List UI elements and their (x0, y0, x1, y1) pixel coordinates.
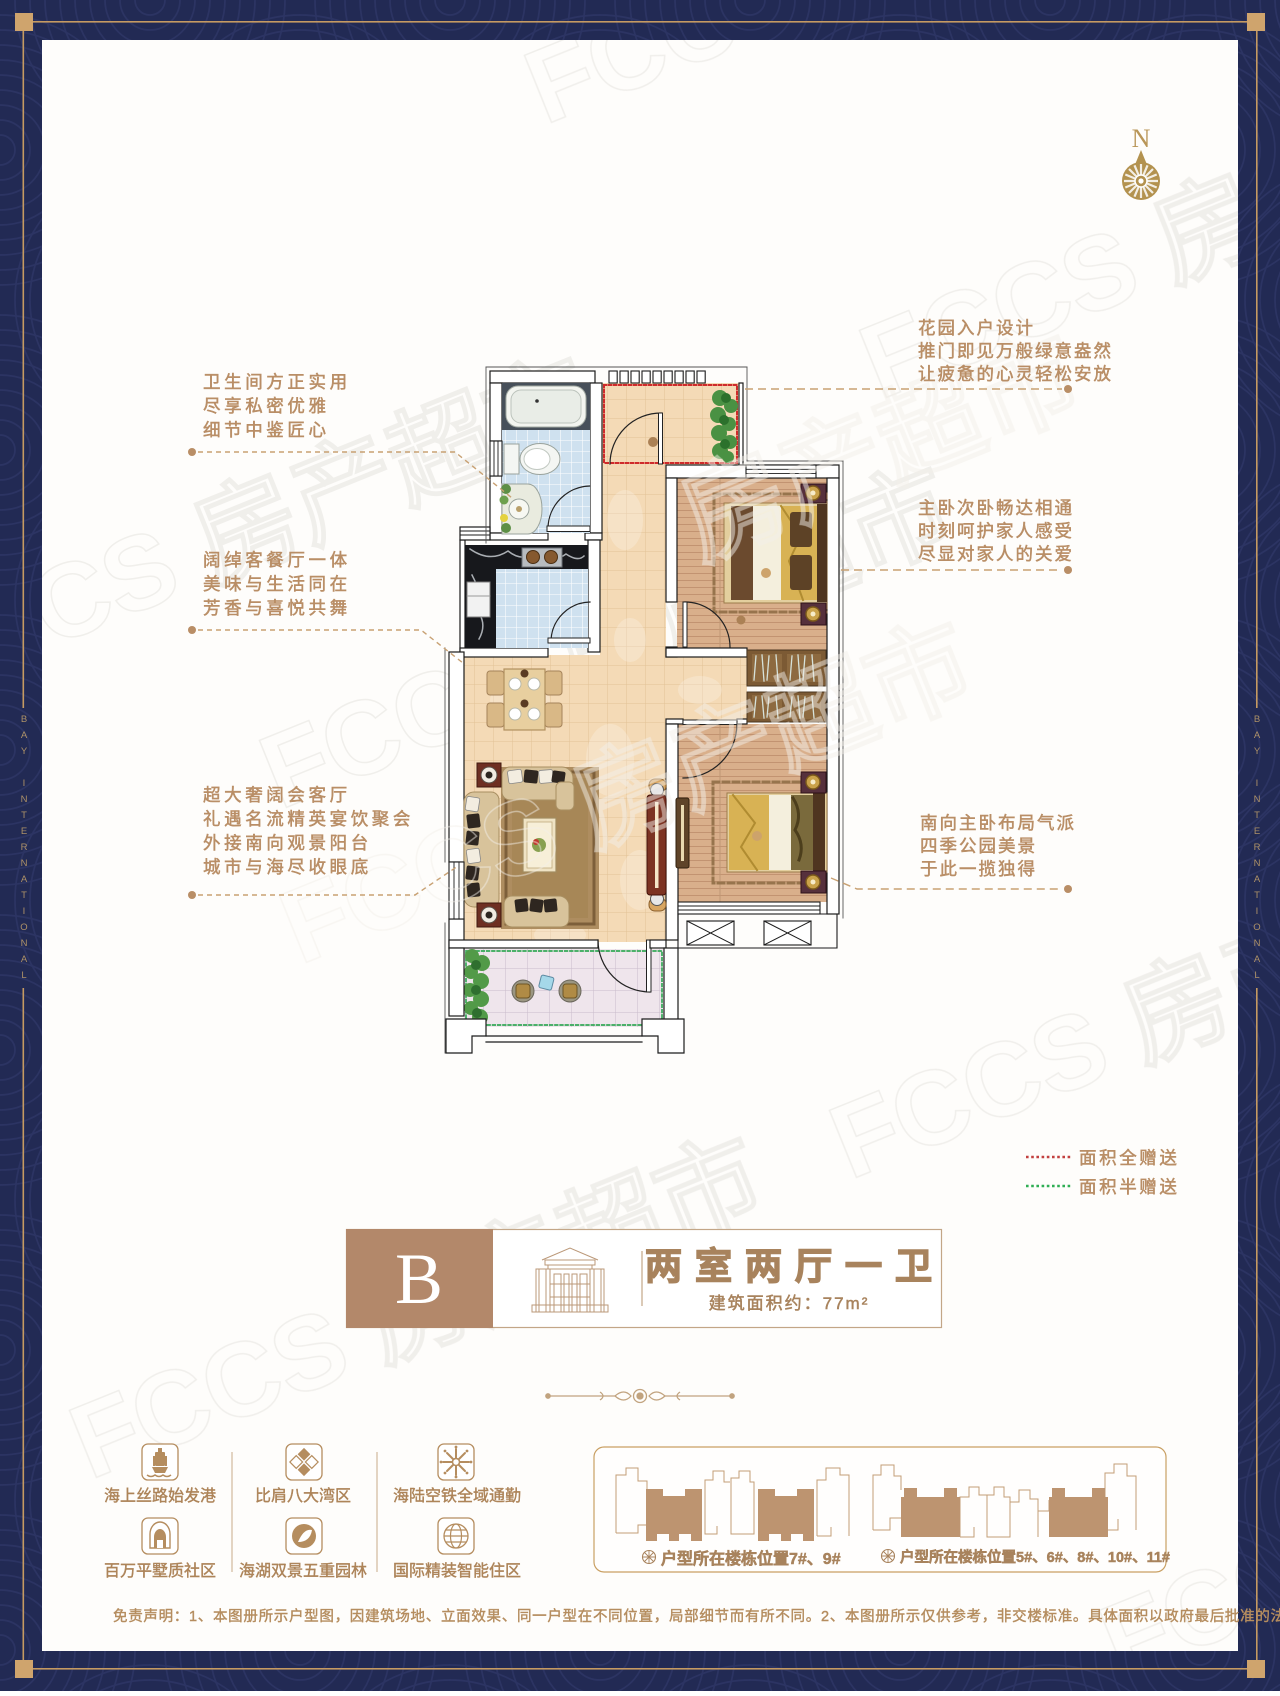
svg-text:南向主卧布局气派: 南向主卧布局气派 (920, 813, 1076, 833)
svg-text:I: I (23, 778, 26, 789)
svg-text:A: A (21, 730, 28, 741)
svg-text:E: E (1254, 826, 1260, 837)
svg-text:比肩八大湾区: 比肩八大湾区 (255, 1487, 351, 1505)
svg-text:A: A (1254, 954, 1261, 965)
svg-text:芳香与喜悦共舞: 芳香与喜悦共舞 (203, 598, 351, 618)
svg-text:R: R (21, 842, 28, 853)
svg-text:尽享私密优雅: 尽享私密优雅 (203, 396, 330, 416)
svg-text:B: B (1254, 714, 1260, 725)
svg-text:海陆空铁全域通勤: 海陆空铁全域通勤 (393, 1487, 521, 1505)
svg-text:户型所在楼栋位置7#、9#: 户型所在楼栋位置7#、9# (661, 1549, 841, 1568)
svg-text:尽显对家人的关爱: 尽显对家人的关爱 (918, 544, 1074, 564)
svg-text:四季公园美景: 四季公园美景 (920, 836, 1037, 856)
svg-text:N: N (1254, 858, 1261, 869)
svg-text:阔绰客餐厅一体: 阔绰客餐厅一体 (203, 550, 351, 570)
svg-text:推门即见万般绿意盎然: 推门即见万般绿意盎然 (918, 341, 1113, 361)
svg-text:Y: Y (21, 746, 28, 757)
svg-text:N: N (21, 794, 28, 805)
svg-text:I: I (1256, 778, 1259, 789)
svg-text:面积全赠送: 面积全赠送 (1079, 1148, 1180, 1168)
svg-text:E: E (21, 826, 27, 837)
svg-text:城市与海尽收眼底: 城市与海尽收眼底 (203, 857, 372, 877)
svg-text:细节中鉴匠心: 细节中鉴匠心 (203, 420, 330, 440)
svg-text:建筑面积约：77m²: 建筑面积约：77m² (709, 1294, 870, 1313)
svg-text:T: T (1254, 810, 1260, 821)
svg-text:花园入户设计: 花园入户设计 (918, 318, 1035, 338)
svg-text:T: T (1254, 890, 1260, 901)
svg-text:面积半赠送: 面积半赠送 (1079, 1177, 1180, 1197)
svg-text:T: T (21, 810, 27, 821)
svg-text:B: B (21, 714, 27, 725)
svg-text:I: I (23, 906, 26, 917)
svg-text:L: L (21, 970, 26, 981)
svg-text:O: O (1253, 922, 1260, 933)
svg-text:O: O (20, 922, 27, 933)
svg-text:R: R (1254, 842, 1261, 853)
svg-text:百万平墅质社区: 百万平墅质社区 (104, 1562, 216, 1580)
svg-text:美味与生活同在: 美味与生活同在 (203, 574, 351, 594)
svg-text:N: N (21, 858, 28, 869)
svg-text:让疲惫的心灵轻松安放: 让疲惫的心灵轻松安放 (918, 364, 1113, 384)
svg-text:N: N (1132, 124, 1151, 153)
svg-text:N: N (1254, 794, 1261, 805)
svg-text:超大奢阔会客厅: 超大奢阔会客厅 (203, 785, 351, 805)
svg-text:A: A (1254, 730, 1261, 741)
svg-text:海上丝路始发港: 海上丝路始发港 (104, 1487, 216, 1505)
svg-text:Y: Y (1254, 746, 1261, 757)
svg-text:海湖双景五重园林: 海湖双景五重园林 (239, 1562, 367, 1580)
svg-text:A: A (21, 954, 28, 965)
svg-text:A: A (1254, 874, 1261, 885)
svg-text:于此一揽独得: 于此一揽独得 (920, 859, 1037, 879)
svg-text:免责声明：1、本图册所示户型图，因建筑场地、立面效果、同一户: 免责声明：1、本图册所示户型图，因建筑场地、立面效果、同一户型在不同位置，局部细… (113, 1607, 1280, 1625)
svg-text:户型所在楼栋位置5#、6#、8#、10#、11#: 户型所在楼栋位置5#、6#、8#、10#、11# (900, 1548, 1170, 1566)
svg-text:N: N (1254, 938, 1261, 949)
svg-text:国际精装智能住区: 国际精装智能住区 (393, 1562, 521, 1580)
svg-text:卫生间方正实用: 卫生间方正实用 (203, 372, 351, 392)
svg-text:主卧次卧畅达相通: 主卧次卧畅达相通 (918, 498, 1074, 518)
svg-text:B: B (395, 1239, 443, 1319)
svg-text:N: N (21, 938, 28, 949)
svg-text:时刻呵护家人感受: 时刻呵护家人感受 (918, 521, 1074, 541)
svg-text:L: L (1254, 970, 1259, 981)
svg-text:两室两厅一卫: 两室两厅一卫 (645, 1245, 945, 1287)
svg-text:礼遇名流精英宴饮聚会: 礼遇名流精英宴饮聚会 (203, 809, 414, 829)
svg-text:外接南向观景阳台: 外接南向观景阳台 (203, 833, 372, 853)
svg-text:A: A (21, 874, 28, 885)
svg-text:I: I (1256, 906, 1259, 917)
svg-text:T: T (21, 890, 27, 901)
